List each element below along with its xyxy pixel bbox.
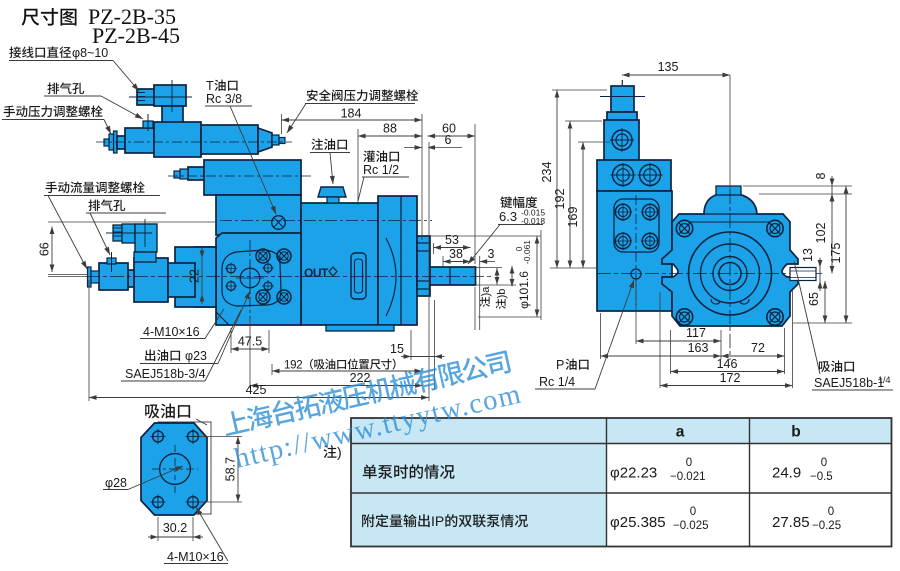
svg-text:13: 13 (801, 248, 815, 262)
svg-text:8: 8 (814, 172, 828, 179)
svg-text:吸油口: 吸油口 (818, 356, 856, 375)
svg-text:排气孔: 排气孔 (47, 78, 85, 97)
svg-text:尺寸图: 尺寸图 (21, 3, 78, 30)
svg-text:53: 53 (445, 233, 459, 247)
svg-text:6.3: 6.3 (499, 209, 517, 224)
svg-text:27.85: 27.85 (772, 514, 810, 531)
svg-text:附定量输出IP的双联泵情况: 附定量输出IP的双联泵情况 (361, 511, 528, 531)
svg-text:0: 0 (690, 506, 696, 518)
svg-text:0: 0 (821, 457, 827, 469)
svg-text:0: 0 (686, 457, 692, 469)
svg-text:φ8~10: φ8~10 (72, 46, 108, 60)
svg-text:172: 172 (720, 371, 741, 385)
svg-text:163: 163 (688, 341, 709, 355)
svg-text:接线口直径: 接线口直径 (9, 42, 72, 61)
svg-text:手动压力调整螺栓: 手动压力调整螺栓 (3, 101, 104, 120)
svg-text:φ28: φ28 (105, 476, 127, 490)
svg-text:SAEJ518b-3/4: SAEJ518b-3/4 (125, 367, 206, 381)
svg-text:SAEJ518b-1: SAEJ518b-1 (814, 376, 884, 390)
svg-text:66: 66 (38, 242, 52, 256)
svg-text:169: 169 (566, 207, 580, 228)
svg-text:102: 102 (814, 223, 828, 244)
svg-text:192: 192 (553, 189, 567, 210)
svg-text:1/4: 1/4 (878, 375, 891, 385)
svg-text:0: 0 (828, 506, 834, 518)
svg-text:4-M10×16: 4-M10×16 (167, 550, 224, 564)
svg-text:P: P (556, 358, 564, 372)
svg-text:Rc 1/4: Rc 1/4 (539, 375, 575, 389)
svg-text:吸油口: 吸油口 (144, 398, 192, 422)
svg-text:65: 65 (807, 292, 821, 306)
svg-text:油口: 油口 (565, 354, 590, 373)
svg-text:PZ-2B-45: PZ-2B-45 (92, 23, 180, 48)
svg-text:47.5: 47.5 (238, 335, 262, 349)
svg-text:234: 234 (540, 162, 554, 183)
svg-text:−0.25: −0.25 (812, 520, 841, 532)
svg-text:175: 175 (829, 243, 843, 264)
svg-text:Rc 1/2: Rc 1/2 (363, 163, 399, 177)
svg-text:30.2: 30.2 (163, 521, 187, 535)
svg-text:135: 135 (658, 60, 679, 74)
svg-text:15: 15 (390, 342, 404, 356)
svg-text:b: b (791, 424, 800, 441)
svg-text:−0.5: −0.5 (810, 471, 833, 483)
svg-text:OUT: OUT (304, 266, 329, 280)
svg-text:φ101.6: φ101.6 (517, 271, 531, 309)
svg-text:φ23: φ23 (185, 349, 207, 363)
svg-text:−0.025: −0.025 (673, 520, 709, 532)
svg-text:184: 184 (341, 107, 362, 121)
svg-text:φ22.23: φ22.23 (610, 465, 657, 482)
svg-text:−0.021: −0.021 (670, 471, 706, 483)
svg-text:117: 117 (686, 326, 706, 340)
svg-text:Rc 3/8: Rc 3/8 (206, 92, 242, 106)
svg-text:安全阀压力调整螺栓: 安全阀压力调整螺栓 (306, 85, 419, 104)
svg-text:-0.061: -0.061 (522, 240, 532, 264)
svg-text:22: 22 (188, 269, 202, 283)
svg-text:6: 6 (445, 133, 452, 147)
svg-text:24.9: 24.9 (772, 465, 801, 482)
svg-text:3: 3 (488, 247, 495, 261)
svg-text:出油口: 出油口 (144, 345, 182, 364)
svg-text:φ25.385: φ25.385 (610, 514, 666, 531)
svg-text:38: 38 (449, 247, 463, 261)
svg-text:72: 72 (751, 341, 765, 355)
svg-text:注)b: 注)b (493, 289, 509, 310)
svg-text:注)a: 注)a (477, 286, 493, 308)
svg-text:4-M10×16: 4-M10×16 (143, 325, 200, 339)
svg-text:146: 146 (717, 357, 738, 371)
svg-text:手动流量调整螺栓: 手动流量调整螺栓 (45, 177, 146, 196)
svg-text:注油口: 注油口 (311, 134, 349, 153)
svg-text:T: T (206, 79, 214, 93)
svg-text:单泵时的情况: 单泵时的情况 (362, 461, 456, 483)
svg-text:88: 88 (383, 122, 397, 136)
svg-text:排气孔: 排气孔 (88, 195, 126, 214)
svg-text:a: a (676, 424, 685, 441)
